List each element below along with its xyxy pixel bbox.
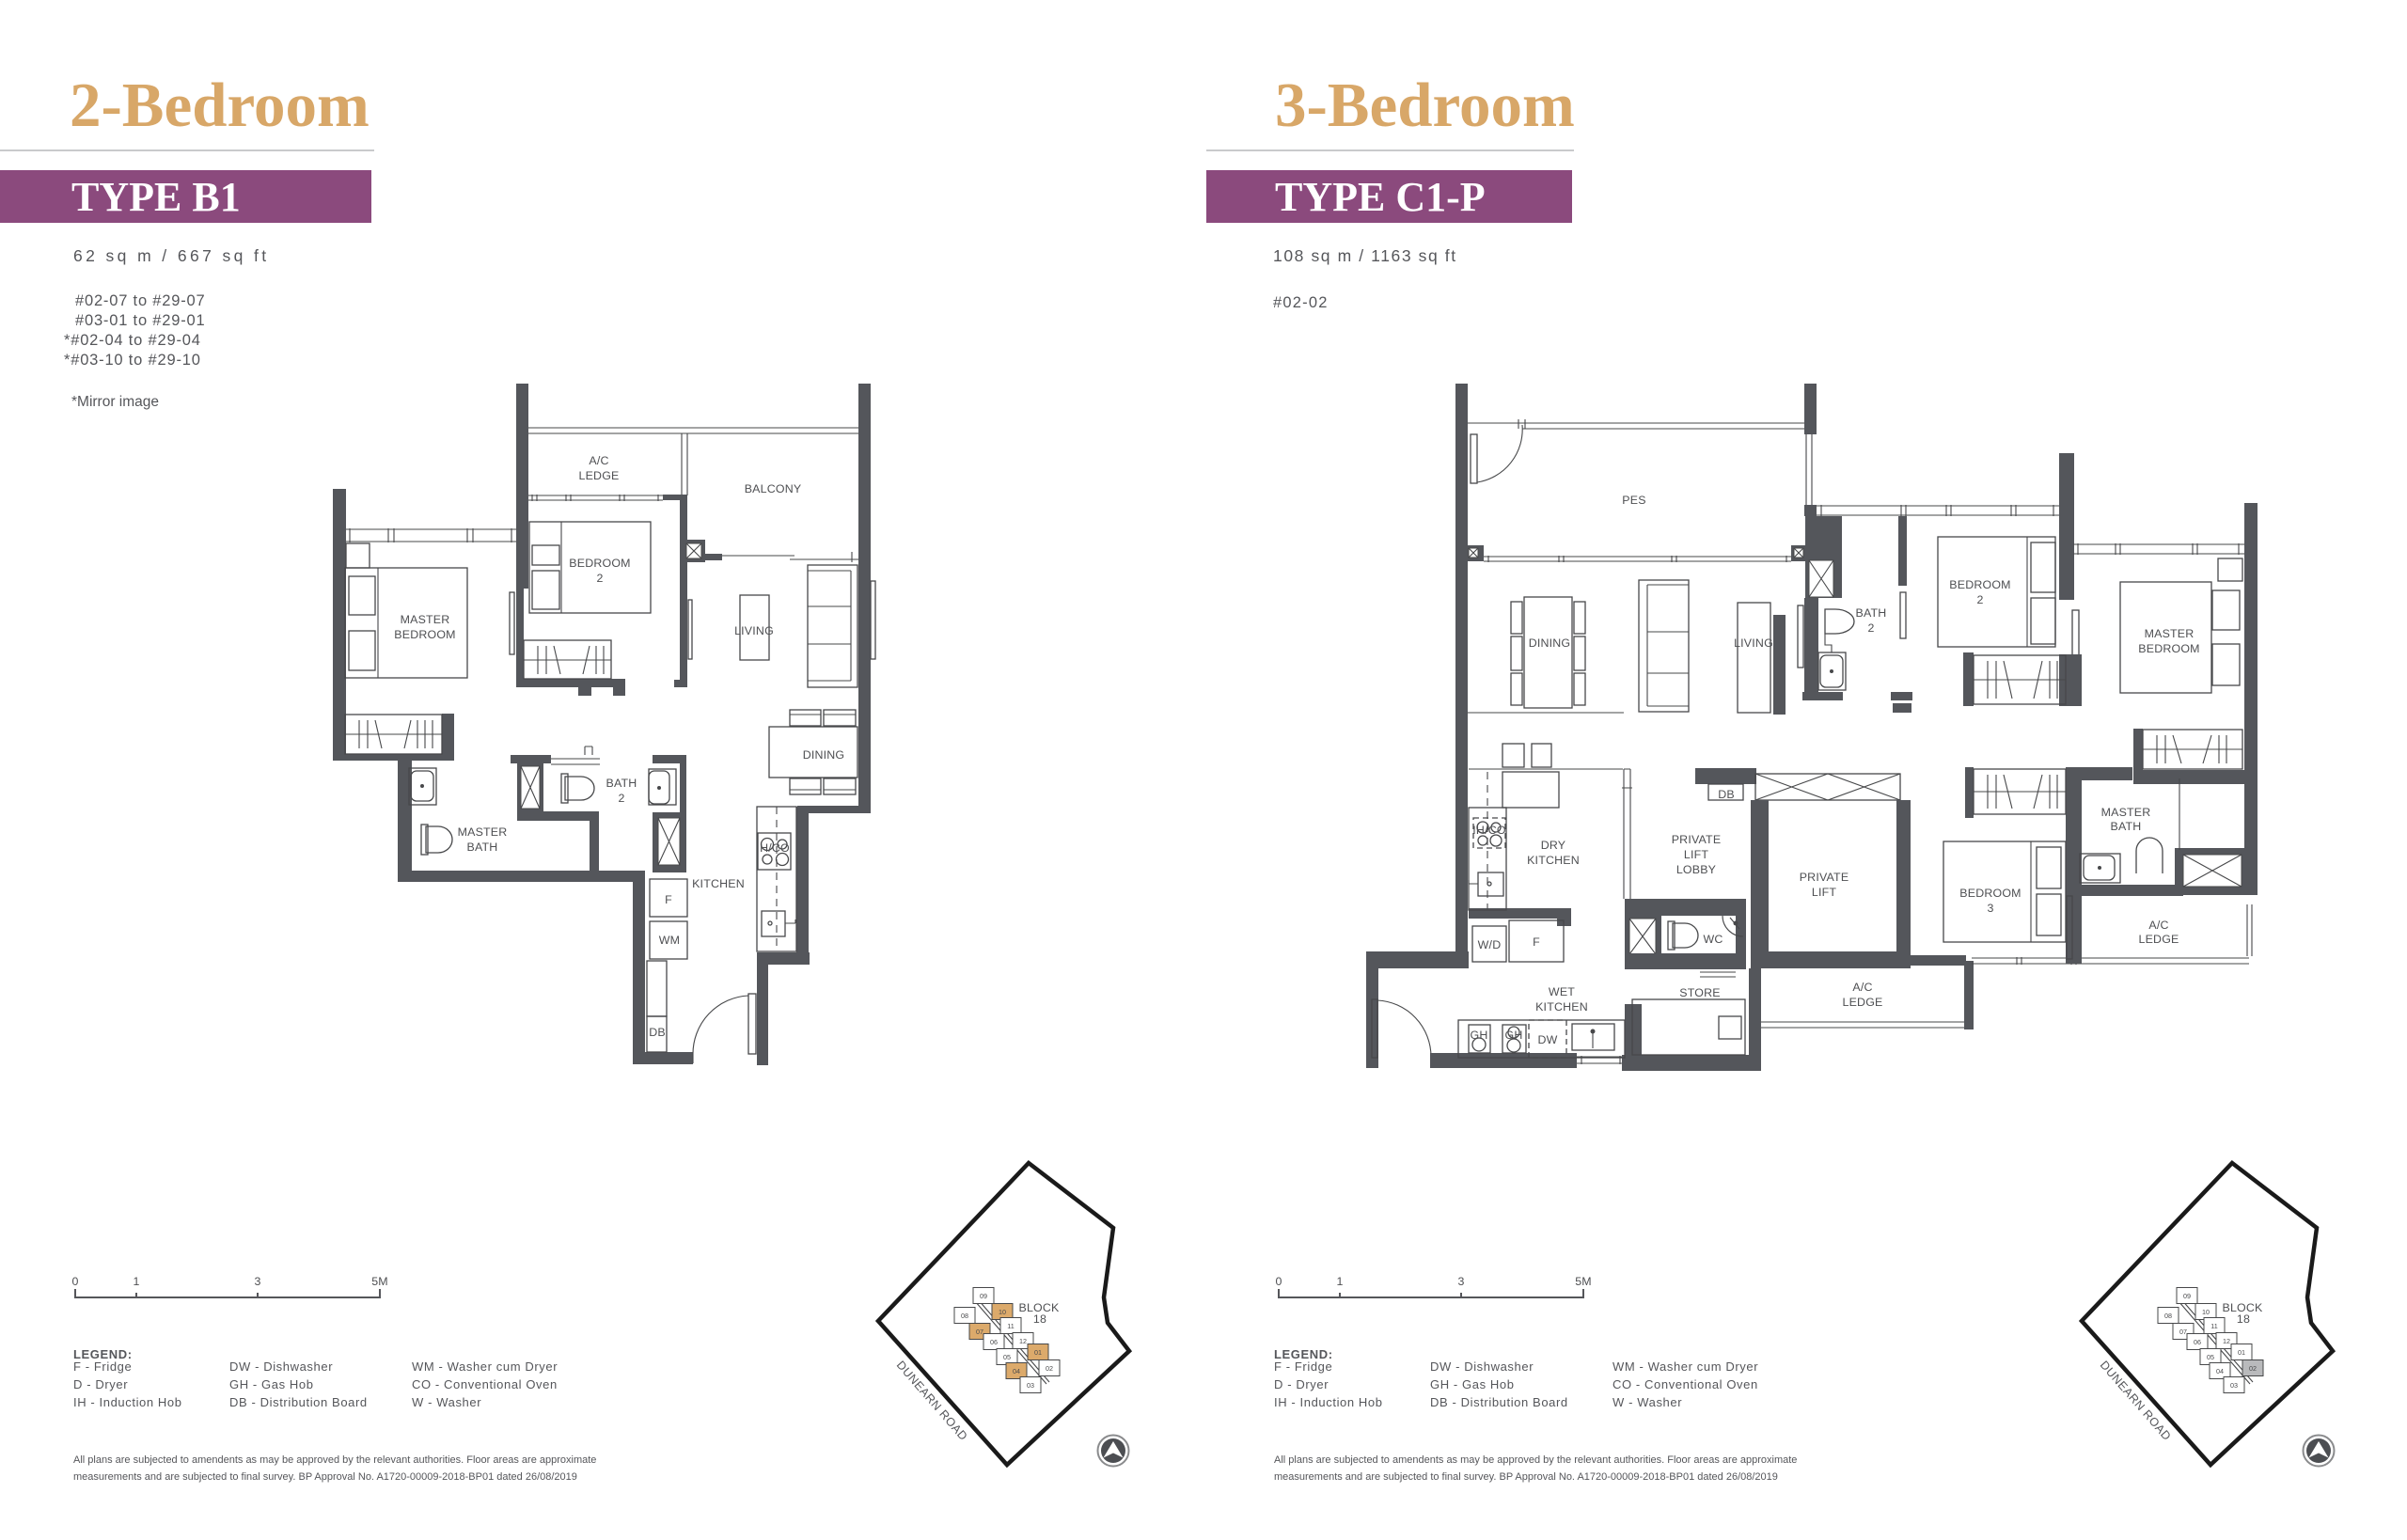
svg-text:06: 06 [2194,1338,2201,1346]
svg-text:DW - Dishwasher: DW - Dishwasher [229,1359,333,1374]
svg-text:LIFT: LIFT [1684,848,1709,861]
svg-text:62 sq m / 667 sq ft: 62 sq m / 667 sq ft [73,246,270,265]
svg-text:01: 01 [1034,1348,1042,1357]
svg-text:D - Dryer: D - Dryer [73,1377,128,1391]
svg-text:5M: 5M [371,1275,388,1288]
svg-text:BEDROOM: BEDROOM [569,557,630,570]
svg-text:A/C: A/C [2148,919,2168,932]
svg-text:measurements and are subjected: measurements and are subjected to final … [73,1471,577,1483]
svg-text:TYPE B1: TYPE B1 [71,174,241,220]
svg-text:D - Dryer: D - Dryer [1274,1377,1329,1391]
svg-text:WM - Washer cum Dryer: WM - Washer cum Dryer [1613,1359,1758,1374]
svg-text:2: 2 [596,572,603,585]
svg-text:2-Bedroom: 2-Bedroom [70,71,370,140]
svg-text:LIVING: LIVING [734,624,774,637]
svg-text:11: 11 [1007,1322,1014,1330]
svg-text:W - Washer: W - Washer [1613,1395,1682,1409]
svg-text:07: 07 [2179,1328,2187,1336]
svg-text:BATH: BATH [2111,820,2142,833]
svg-text:01: 01 [2238,1348,2245,1357]
svg-text:BEDROOM: BEDROOM [1959,887,2021,900]
svg-text:2: 2 [1867,621,1874,635]
svg-text:IH/CO: IH/CO [1472,824,1506,837]
svg-text:IH - Induction Hob: IH - Induction Hob [73,1395,182,1409]
svg-text:09: 09 [980,1292,987,1300]
svg-text:09: 09 [2183,1292,2191,1300]
svg-text:GH: GH [1505,1029,1523,1042]
svg-text:05: 05 [1003,1353,1011,1361]
svg-text:LEDGE: LEDGE [1842,996,1882,1009]
svg-text:LEDGE: LEDGE [578,469,619,482]
svg-text:PRIVATE: PRIVATE [1672,833,1722,846]
svg-text:#02-02: #02-02 [1273,294,1329,311]
svg-text:F - Fridge: F - Fridge [1274,1359,1332,1374]
svg-text:CO - Conventional Oven: CO - Conventional Oven [1613,1377,1758,1391]
svg-text:*#03-10 to #29-10: *#03-10 to #29-10 [64,352,201,369]
svg-text:12: 12 [2223,1337,2230,1345]
svg-text:KITCHEN: KITCHEN [1535,1000,1588,1014]
svg-text:10: 10 [2202,1308,2210,1316]
svg-text:A/C: A/C [1852,981,1872,994]
svg-text:10: 10 [999,1308,1006,1316]
svg-text:3: 3 [254,1275,260,1288]
svg-text:W - Washer: W - Washer [412,1395,481,1409]
svg-text:H/CO: H/CO [760,841,790,855]
svg-text:*#02-04 to #29-04: *#02-04 to #29-04 [64,332,201,349]
svg-text:1: 1 [1336,1275,1343,1288]
svg-text:LEDGE: LEDGE [2138,933,2179,946]
svg-text:F: F [1533,935,1540,949]
svg-text:BEDROOM: BEDROOM [394,628,455,641]
svg-text:DB: DB [649,1026,666,1039]
svg-text:18: 18 [1033,1312,1046,1326]
svg-text:0: 0 [71,1275,78,1288]
svg-text:MASTER: MASTER [2101,806,2151,819]
svg-text:BATH: BATH [1856,606,1887,620]
svg-text:MASTER: MASTER [401,613,450,626]
svg-text:BATH: BATH [606,777,637,790]
svg-text:LIVING: LIVING [1734,636,1773,650]
svg-text:06: 06 [990,1338,998,1346]
svg-text:07: 07 [976,1328,983,1336]
svg-text:3-Bedroom: 3-Bedroom [1275,71,1575,140]
svg-text:TYPE C1-P: TYPE C1-P [1275,174,1486,220]
svg-text:02: 02 [1046,1364,1053,1373]
svg-text:F: F [665,893,672,906]
svg-text:108 sq m / 1163 sq ft: 108 sq m / 1163 sq ft [1273,246,1457,265]
svg-text:A/C: A/C [589,454,608,467]
svg-text:PES: PES [1622,494,1645,507]
svg-text:PRIVATE: PRIVATE [1800,871,1849,884]
svg-text:WM - Washer cum Dryer: WM - Washer cum Dryer [412,1359,558,1374]
svg-text:KITCHEN: KITCHEN [692,877,745,890]
svg-text:08: 08 [2164,1312,2172,1320]
svg-text:03: 03 [1027,1381,1034,1390]
svg-text:2: 2 [618,792,624,805]
svg-text:KITCHEN: KITCHEN [1527,854,1580,867]
svg-text:2: 2 [1976,593,1983,606]
svg-text:DINING: DINING [803,748,845,762]
svg-text:DINING: DINING [1529,636,1571,650]
svg-text:DRY: DRY [1541,839,1566,852]
svg-text:GH: GH [1471,1029,1488,1042]
svg-text:WM: WM [659,934,680,947]
svg-text:BALCONY: BALCONY [745,482,802,495]
svg-text:DB - Distribution Board: DB - Distribution Board [229,1395,368,1409]
svg-text:GH - Gas Hob: GH - Gas Hob [1430,1377,1515,1391]
svg-text:5M: 5M [1575,1275,1592,1288]
svg-text:1: 1 [133,1275,139,1288]
svg-text:05: 05 [2207,1353,2214,1361]
svg-text:F - Fridge: F - Fridge [73,1359,132,1374]
svg-text:*Mirror image: *Mirror image [71,394,159,410]
svg-text:02: 02 [2249,1364,2257,1373]
svg-text:CO - Conventional Oven: CO - Conventional Oven [412,1377,558,1391]
svg-text:measurements and are subjected: measurements and are subjected to final … [1274,1471,1778,1483]
svg-text:08: 08 [961,1312,968,1320]
svg-text:DB: DB [1718,788,1735,801]
svg-text:LIFT: LIFT [1812,886,1837,899]
svg-text:WET: WET [1549,985,1575,998]
svg-text:11: 11 [2210,1322,2217,1330]
svg-text:BEDROOM: BEDROOM [1949,578,2010,591]
svg-text:DW - Dishwasher: DW - Dishwasher [1430,1359,1534,1374]
svg-text:03: 03 [2230,1381,2238,1390]
svg-text:12: 12 [1019,1337,1027,1345]
svg-text:MASTER: MASTER [2145,627,2195,640]
svg-text:BEDROOM: BEDROOM [2138,642,2199,655]
svg-text:#02-07 to #29-07: #02-07 to #29-07 [75,292,205,309]
svg-text:WC: WC [1703,933,1723,946]
svg-text:18: 18 [2237,1312,2250,1326]
svg-text:04: 04 [1013,1367,1020,1375]
svg-text:3: 3 [1987,902,1993,915]
svg-text:All plans are subjected to ame: All plans are subjected to amendents as … [1274,1454,1797,1466]
svg-text:0: 0 [1275,1275,1282,1288]
svg-text:DB - Distribution Board: DB - Distribution Board [1430,1395,1568,1409]
svg-text:All plans are subjected to ame: All plans are subjected to amendents as … [73,1454,596,1466]
svg-text:3: 3 [1457,1275,1464,1288]
svg-text:#03-01 to #29-01: #03-01 to #29-01 [75,312,205,329]
svg-text:IH - Induction Hob: IH - Induction Hob [1274,1395,1383,1409]
svg-text:MASTER: MASTER [458,825,508,839]
svg-text:DW: DW [1537,1033,1557,1046]
svg-text:STORE: STORE [1679,986,1720,999]
svg-text:04: 04 [2216,1367,2224,1375]
svg-text:LOBBY: LOBBY [1676,863,1716,876]
svg-text:BATH: BATH [467,841,498,854]
svg-text:W/D: W/D [1478,938,1502,951]
svg-text:GH - Gas Hob: GH - Gas Hob [229,1377,314,1391]
